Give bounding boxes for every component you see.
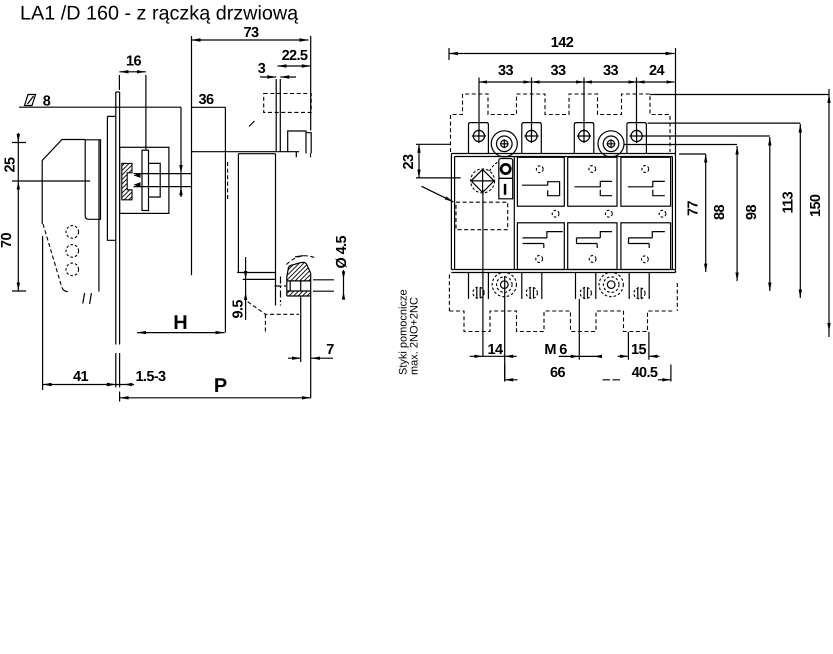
svg-text:73: 73 bbox=[244, 25, 259, 41]
svg-text:3: 3 bbox=[258, 61, 266, 77]
svg-text:15: 15 bbox=[631, 342, 646, 358]
svg-text:33: 33 bbox=[551, 63, 566, 79]
svg-text:88: 88 bbox=[712, 205, 728, 220]
svg-text:H: H bbox=[173, 312, 187, 334]
svg-text:Ø 4.5: Ø 4.5 bbox=[334, 236, 350, 269]
svg-text:P: P bbox=[214, 375, 227, 397]
svg-text:max. 2NO+2NC: max. 2NO+2NC bbox=[409, 297, 421, 375]
svg-text:9.5: 9.5 bbox=[231, 300, 247, 319]
svg-text:142: 142 bbox=[551, 35, 574, 51]
svg-text:77: 77 bbox=[686, 201, 702, 216]
svg-text:113: 113 bbox=[781, 191, 797, 213]
svg-text:25: 25 bbox=[3, 157, 19, 172]
svg-text:16: 16 bbox=[126, 54, 141, 70]
svg-text:150: 150 bbox=[808, 194, 824, 217]
svg-text:1.5-3: 1.5-3 bbox=[135, 369, 166, 385]
svg-text:33: 33 bbox=[603, 63, 618, 79]
svg-text:66: 66 bbox=[550, 365, 565, 381]
svg-text:40.5: 40.5 bbox=[632, 365, 658, 381]
svg-text:23: 23 bbox=[401, 154, 417, 169]
svg-text:24: 24 bbox=[649, 63, 664, 79]
svg-text:LA1 /D 160 - z rączką drzwiową: LA1 /D 160 - z rączką drzwiową bbox=[20, 3, 298, 25]
svg-text:14: 14 bbox=[488, 342, 503, 358]
svg-text:41: 41 bbox=[73, 369, 88, 385]
svg-text:7: 7 bbox=[326, 342, 334, 358]
svg-text:98: 98 bbox=[744, 205, 760, 220]
svg-text:36: 36 bbox=[199, 92, 214, 108]
svg-text:M 6: M 6 bbox=[544, 342, 567, 358]
svg-text:22.5: 22.5 bbox=[282, 48, 308, 64]
svg-text:33: 33 bbox=[498, 63, 513, 79]
svg-text:70: 70 bbox=[0, 233, 15, 248]
